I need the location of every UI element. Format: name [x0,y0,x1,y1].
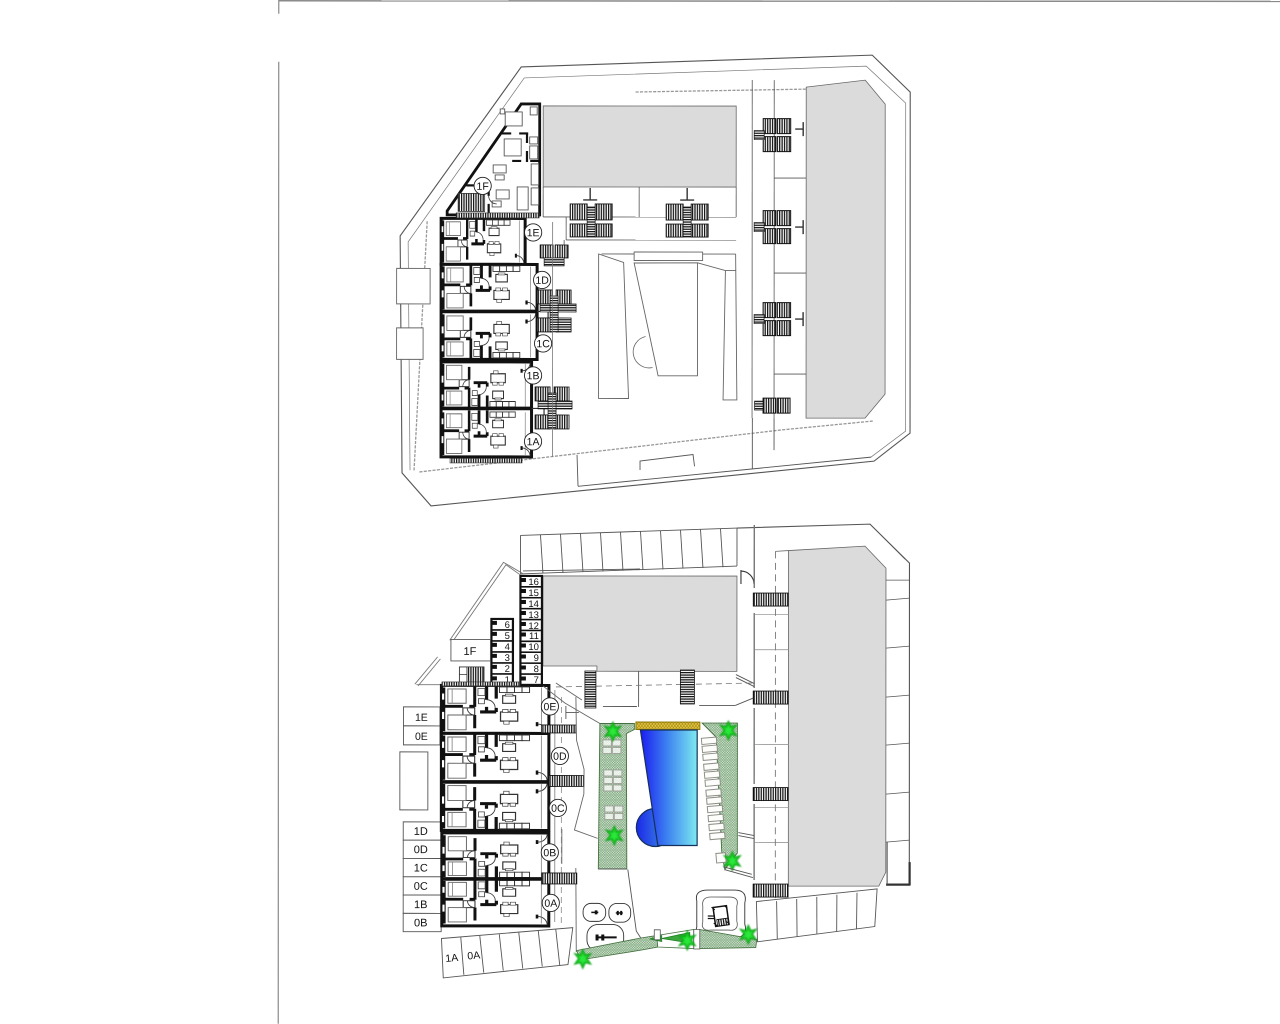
svg-text:0D: 0D [553,751,567,763]
svg-text:9: 9 [534,653,539,664]
svg-text:14: 14 [528,599,539,610]
svg-text:16: 16 [528,577,539,588]
svg-text:0C: 0C [551,803,565,815]
svg-text:1E: 1E [527,227,540,239]
svg-text:8: 8 [534,664,539,675]
svg-text:1F: 1F [464,646,477,658]
svg-text:1B: 1B [414,899,427,911]
svg-text:1C: 1C [414,862,428,874]
svg-text:6: 6 [505,620,510,631]
svg-text:1F: 1F [477,181,489,193]
svg-text:0E: 0E [543,701,556,713]
svg-text:0D: 0D [414,844,428,856]
svg-text:1D: 1D [535,275,549,287]
svg-text:1A: 1A [527,436,540,448]
svg-text:1C: 1C [536,338,550,350]
svg-text:3: 3 [505,653,510,664]
svg-text:0A: 0A [544,898,557,910]
svg-text:5: 5 [505,631,510,642]
svg-text:0A: 0A [467,949,481,962]
svg-text:10: 10 [528,642,539,653]
svg-text:4: 4 [505,642,510,653]
svg-text:0B: 0B [543,847,556,859]
svg-text:2: 2 [505,664,510,675]
svg-text:1E: 1E [415,712,428,724]
svg-text:0C: 0C [414,881,428,893]
svg-text:1B: 1B [527,370,540,382]
svg-text:1A: 1A [445,952,459,965]
svg-text:0E: 0E [415,731,428,743]
svg-text:1D: 1D [414,826,428,838]
svg-text:11: 11 [529,631,539,642]
svg-text:0B: 0B [414,917,427,929]
svg-text:15: 15 [528,588,539,599]
svg-text:13: 13 [528,610,539,621]
